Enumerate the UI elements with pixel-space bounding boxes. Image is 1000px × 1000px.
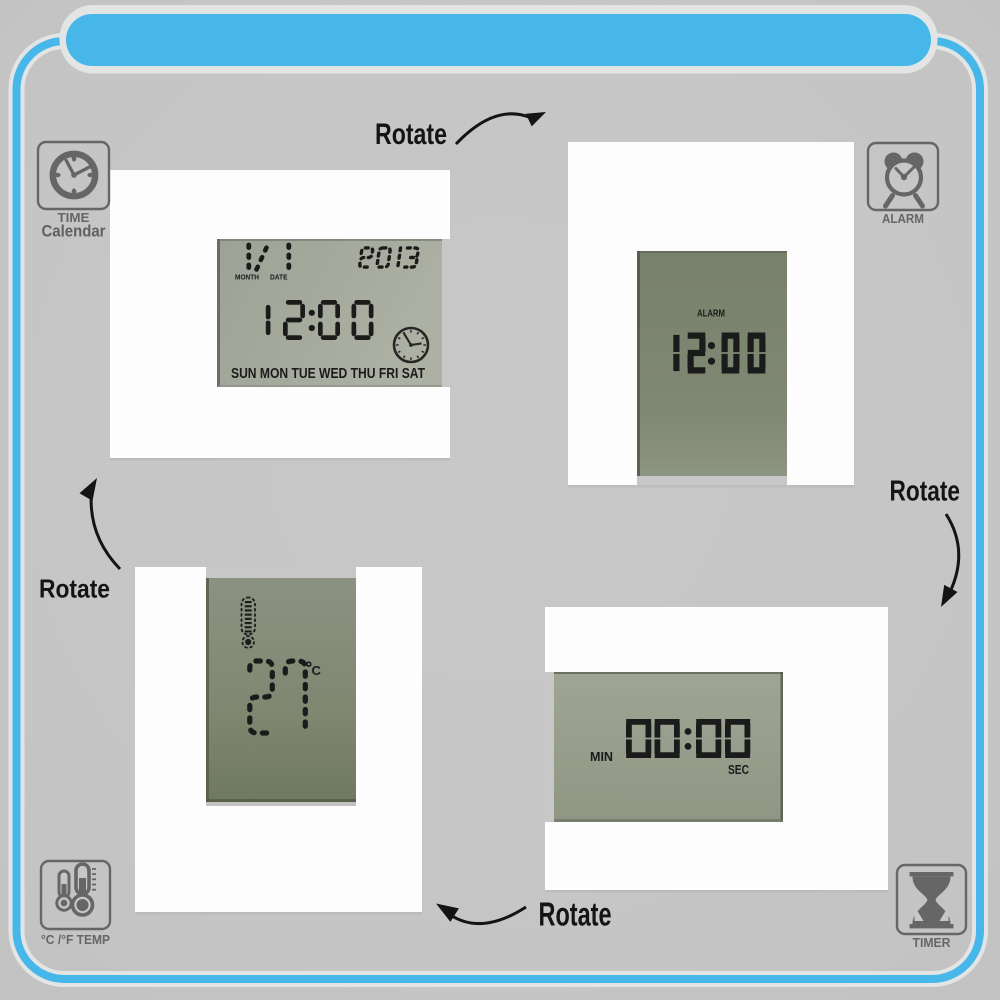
svg-text:DATE: DATE [270,273,288,282]
svg-text:MONTH: MONTH [235,273,259,282]
svg-text:°C /°F TEMP: °C /°F TEMP [41,932,110,947]
svg-text:ALARM: ALARM [697,309,725,320]
svg-text:SUN MON TUE WED THU FRI SAT: SUN MON TUE WED THU FRI SAT [231,366,425,382]
svg-text:Rotate: Rotate [539,896,612,933]
svg-text:MIN: MIN [590,749,613,764]
svg-text:Calendar: Calendar [42,222,106,241]
svg-text:Rotate: Rotate [39,574,110,604]
svg-text:ALARM: ALARM [882,211,924,226]
svg-text:Rotate: Rotate [890,476,961,508]
svg-text:SEC: SEC [728,762,749,777]
svg-text:TIMER: TIMER [913,936,951,950]
svg-text:C: C [312,663,322,678]
svg-text:Rotate: Rotate [375,118,447,151]
